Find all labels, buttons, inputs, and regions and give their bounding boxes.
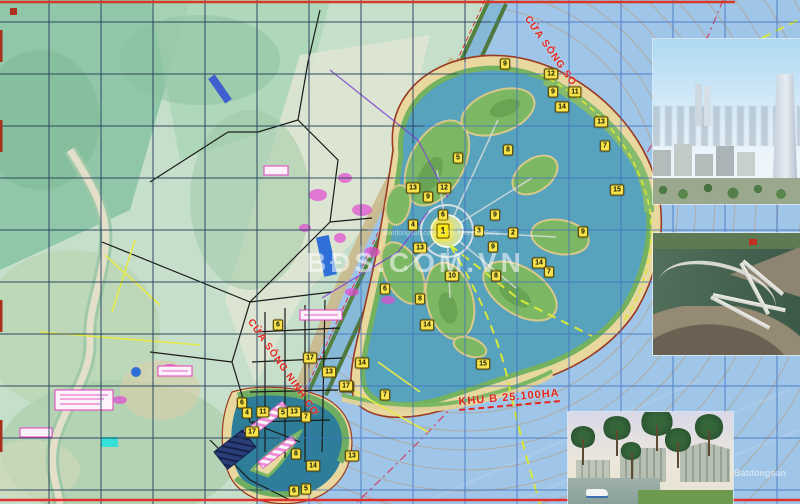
plot-marker-5: 5: [301, 484, 311, 495]
plot-marker-11: 11: [256, 407, 269, 418]
plot-marker-12: 12: [437, 183, 451, 194]
watermark-batdongsan-corner: Batdongsan: [734, 468, 786, 478]
inset-sea-barrier-aerial: [653, 233, 800, 355]
masterplan-map: CỬA SÔNG SOCỬA SÔNG NINH CƠKHU B 25.100H…: [0, 0, 800, 504]
plot-marker-14: 14: [420, 320, 434, 331]
plot-marker-7: 7: [544, 267, 554, 278]
plot-marker-5: 5: [453, 153, 463, 164]
plot-marker-8: 8: [415, 294, 425, 305]
plot-marker-14: 14: [355, 358, 369, 369]
plot-marker-7: 7: [380, 390, 390, 401]
palm-tree: [602, 416, 632, 440]
tower-building: [704, 86, 711, 126]
plot-marker-13: 13: [594, 117, 608, 128]
watermark-batdongsan-small: Batdongsan.com.vn by PropertyGuru: [384, 230, 499, 237]
plot-marker-15: 15: [610, 185, 624, 196]
inset-resort-villas-render: [568, 412, 733, 504]
plot-marker-13: 13: [345, 451, 359, 462]
midrise-buildings: [653, 142, 773, 176]
plot-marker-9: 9: [423, 192, 433, 203]
far-shore: [653, 233, 800, 249]
plot-marker-13: 13: [287, 407, 301, 418]
plot-marker-15: 15: [476, 359, 490, 370]
palm-tree: [694, 414, 724, 440]
inset-city-skyline-render: [653, 39, 800, 204]
plot-marker-8: 8: [503, 145, 513, 156]
plot-marker-11: 11: [568, 87, 581, 98]
pond: [131, 367, 141, 377]
palm-tree: [570, 426, 596, 448]
tree-line: [653, 178, 800, 204]
plot-marker-6: 6: [289, 486, 299, 497]
plot-marker-13: 13: [406, 183, 420, 194]
boat: [586, 489, 608, 496]
plot-marker-7: 7: [600, 141, 610, 152]
red-roof-building: [749, 239, 757, 245]
plot-marker-17: 17: [303, 353, 317, 364]
plot-marker-6: 6: [380, 284, 390, 295]
palm-tree: [664, 428, 692, 452]
plot-marker-4: 4: [408, 220, 418, 231]
plot-marker-14: 14: [306, 461, 320, 472]
plot-marker-13: 13: [322, 367, 336, 378]
plot-marker-9: 9: [490, 210, 500, 221]
tower-building: [695, 84, 702, 126]
plot-marker-9: 9: [578, 227, 588, 238]
plot-marker-2: 2: [508, 228, 518, 239]
plot-marker-8: 8: [291, 449, 301, 460]
plot-marker-17: 17: [339, 381, 353, 392]
plot-marker-14: 14: [555, 102, 569, 113]
plot-marker-7: 7: [301, 412, 311, 423]
plot-marker-4: 4: [242, 408, 252, 419]
plot-marker-17: 17: [245, 427, 259, 438]
plot-marker-12: 12: [544, 69, 558, 80]
plot-marker-6: 6: [273, 320, 283, 331]
plot-marker-9: 9: [548, 87, 558, 98]
lawn: [638, 490, 733, 504]
plot-marker-9: 9: [500, 59, 510, 70]
watermark-bds: BĐS.COM.VN: [306, 247, 525, 279]
plot-marker-6: 6: [438, 210, 448, 221]
palm-tree: [620, 442, 642, 460]
